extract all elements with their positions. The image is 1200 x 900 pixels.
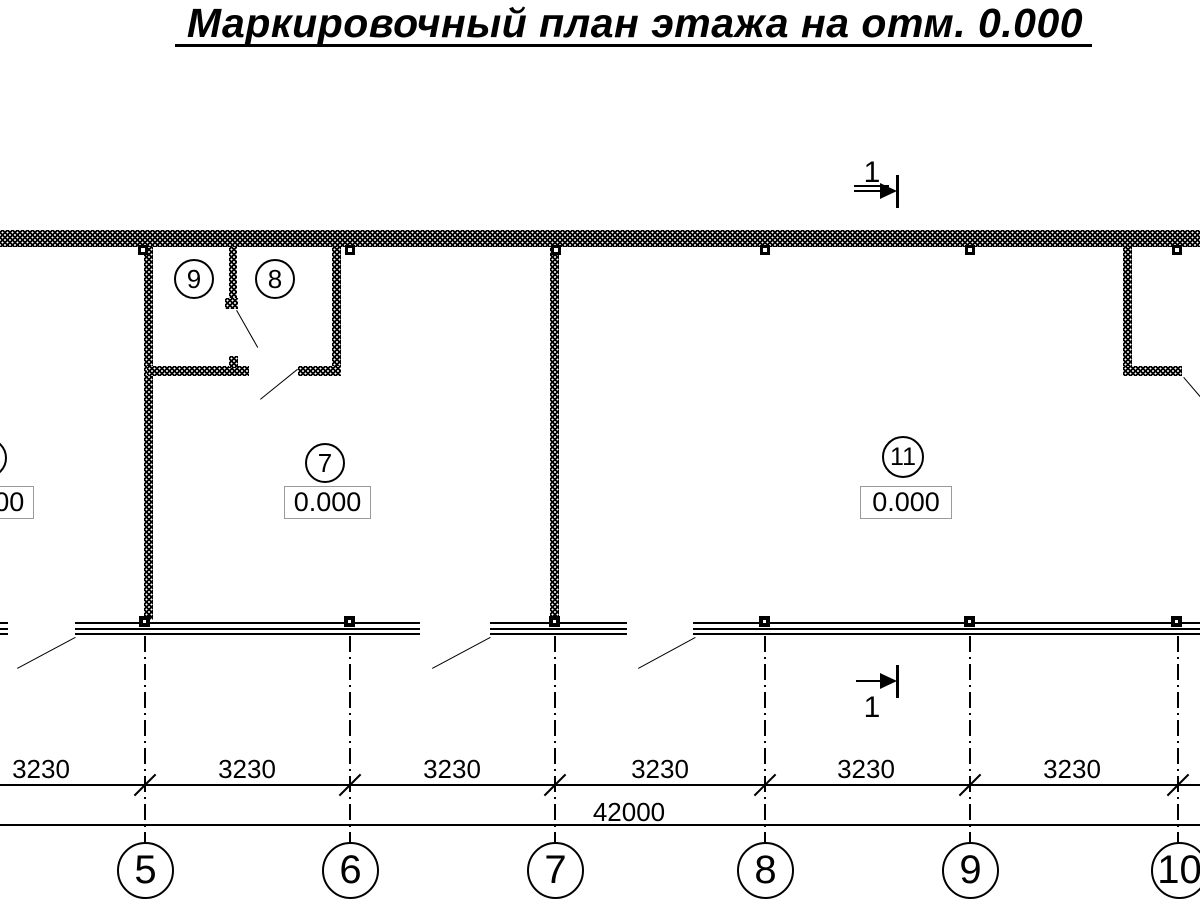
dimension-value: 3230 (392, 754, 512, 785)
wall-axis-7 (550, 247, 559, 620)
column-marker-top-axis6 (345, 245, 355, 255)
room9-bottom-stub (229, 356, 238, 368)
column-marker-bottom-axis9 (964, 616, 975, 627)
drawing-sheet: Маркировочный план этажа на отм. 0.000 1… (0, 0, 1200, 900)
dimension-value: 3230 (1012, 754, 1132, 785)
axis-bubble-7: 7 (527, 842, 584, 899)
section-mark-top-arrow-icon (880, 183, 897, 199)
window-leader-1 (17, 637, 76, 669)
window-leader-2 (432, 637, 491, 669)
column-marker-bottom-axis10 (1171, 616, 1182, 627)
column-marker-top-axis10 (1172, 245, 1182, 255)
door-leader-room8-bottom (260, 369, 298, 400)
dimension-value: 3230 (600, 754, 720, 785)
column-marker-top-axis7 (551, 245, 561, 255)
elevation-mark-room11: 0.000 (860, 486, 952, 519)
dimension-value: 3230 (187, 754, 307, 785)
dimension-value: 3230 (0, 754, 101, 785)
drawing-title: Маркировочный план этажа на отм. 0.000 (90, 0, 1180, 47)
column-marker-bottom-axis6 (344, 616, 355, 627)
column-marker-bottom-axis7 (549, 616, 560, 627)
axis-bubble-9: 9 (942, 842, 999, 899)
wall-axis-5 (144, 247, 153, 620)
section-mark-bottom-label: 1 (852, 691, 892, 725)
axis-bubble-6: 6 (322, 842, 379, 899)
axis-bubble-8: 8 (737, 842, 794, 899)
axis-bubble-10: 10 (1151, 842, 1200, 899)
room8-right-wall (332, 247, 341, 376)
room-number-label: 11 (890, 443, 916, 472)
axis-line-7 (554, 636, 556, 843)
column-marker-top-axis5 (138, 245, 148, 255)
axis-label: 5 (134, 848, 156, 893)
column-marker-top-axis9 (965, 245, 975, 255)
window-band-left-edge (0, 622, 8, 635)
dimension-total-value: 42000 (569, 797, 689, 828)
right-room-bottom-wall (1123, 366, 1182, 376)
room-number-label: 8 (268, 264, 282, 295)
window-band-1 (75, 622, 420, 635)
dimension-value: 3230 (806, 754, 926, 785)
room-number-circle-left-partial (0, 438, 7, 478)
axis-bubble-5: 5 (117, 842, 174, 899)
elevation-mark-room7: 0.000 (284, 486, 371, 519)
axis-line-6 (349, 636, 351, 843)
column-marker-top-axis8 (760, 245, 770, 255)
axis-label: 9 (959, 848, 981, 893)
room-number-circle-8: 8 (255, 259, 295, 299)
axis-label: 7 (544, 848, 566, 893)
right-room-left-wall (1123, 247, 1132, 366)
axis-line-5 (144, 636, 146, 843)
section-mark-bottom-bar (896, 665, 899, 698)
room-number-label: 9 (187, 264, 201, 295)
axis-line-9 (969, 636, 971, 843)
door-leader-partition (236, 310, 258, 348)
axis-label: 10 (1157, 848, 1200, 893)
section-mark-top-bar (896, 175, 899, 208)
elevation-mark-left-partial: 0.000 (0, 486, 34, 519)
window-leader-3 (638, 637, 696, 669)
room-number-circle-11: 11 (882, 436, 924, 478)
room8-bottom-wall (298, 366, 341, 376)
elevation-value: 0.000 (872, 487, 940, 518)
door-leader-right-room (1183, 377, 1200, 399)
axis-line-10 (1177, 636, 1179, 843)
axis-line-8 (764, 636, 766, 843)
room-number-label: 7 (318, 448, 332, 479)
partition-end-cap (225, 298, 238, 309)
column-marker-bottom-axis5 (139, 616, 150, 627)
column-marker-bottom-axis8 (759, 616, 770, 627)
axis-label: 8 (754, 848, 776, 893)
room-number-circle-9: 9 (174, 259, 214, 299)
elevation-value: 0.000 (294, 487, 362, 518)
room-number-circle-7: 7 (305, 443, 345, 483)
section-mark-bottom-arrow-icon (880, 673, 897, 689)
title-underline (175, 44, 1092, 47)
axis-label: 6 (339, 848, 361, 893)
exterior-top-wall (0, 230, 1200, 247)
elevation-value: 0.000 (0, 487, 24, 518)
